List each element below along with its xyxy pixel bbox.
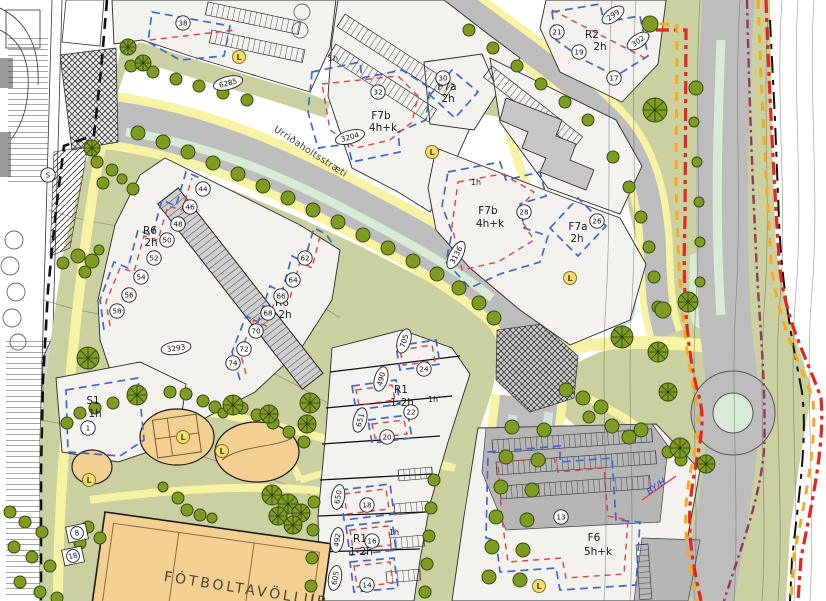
tree-icon [307, 524, 319, 536]
tree-icon [695, 277, 705, 287]
tree-icon [582, 114, 594, 126]
number-text: 32 [373, 88, 382, 97]
large-tree-icon [300, 393, 320, 413]
circled-number: 68 [261, 306, 275, 320]
tree-icon [525, 483, 539, 497]
number-text: 24 [419, 365, 429, 374]
tree-icon [499, 450, 513, 464]
tree-icon [511, 60, 523, 72]
tree-icon [635, 211, 647, 223]
tree-icon [576, 391, 590, 405]
circled-number: 46 [183, 200, 197, 214]
map-label: 4h+k [476, 218, 505, 230]
large-tree-icon [120, 39, 136, 55]
tree-branches [77, 347, 99, 369]
tree-icon [94, 532, 106, 544]
map-label: R1 [394, 384, 408, 396]
tree-branches [135, 55, 151, 71]
tree-icon [51, 592, 63, 601]
tree-icon [643, 241, 655, 253]
tree-icon [298, 436, 310, 448]
map-label: 1h [88, 408, 101, 420]
site-plan-map[interactable]: UrriðaholtsstrætiFÓTBOLTAVÖLLURF7b4h+kF7… [0, 0, 826, 601]
tree-icon [231, 167, 245, 181]
tree-icon [97, 177, 109, 189]
number-text: 54 [136, 273, 146, 282]
tree-icon [305, 580, 317, 592]
tree-icon [34, 586, 46, 598]
circled-number: 17 [607, 71, 621, 85]
tree-icon [695, 237, 705, 247]
east-road-south [708, 430, 733, 601]
tree-branches [260, 405, 278, 423]
circled-number: 19 [572, 45, 586, 59]
tree-icon [463, 24, 475, 36]
number-text: 22 [406, 408, 415, 417]
marker-letter: L [219, 447, 224, 456]
tree-branches [300, 393, 320, 413]
circled-number: 66 [274, 289, 288, 303]
tree-icon [421, 558, 433, 570]
number-text: S [46, 171, 51, 180]
circled-number: 32 [371, 85, 385, 99]
large-tree-icon [648, 342, 668, 362]
circled-number: 20 [380, 430, 394, 444]
tree-icon [356, 228, 370, 242]
tree-icon [256, 179, 270, 193]
circled-number: 62 [298, 251, 312, 265]
circled-number: 58 [110, 304, 124, 318]
tree-icon [164, 386, 176, 398]
large-tree-icon [697, 455, 715, 473]
map-label: 1h [428, 395, 438, 404]
tree-icon [607, 151, 619, 163]
tree-icon [487, 42, 499, 54]
tree-icon [206, 156, 220, 170]
marker-letter: L [86, 476, 91, 485]
number-text: 70 [251, 327, 261, 336]
tree-icon [106, 164, 118, 176]
large-tree-icon [284, 516, 302, 534]
map-label: 2h [278, 309, 291, 321]
large-tree-icon [77, 347, 99, 369]
circled-number: 70 [249, 324, 263, 338]
tree-icon [94, 245, 104, 255]
tree-icon [308, 496, 320, 508]
map-label: 1h [328, 54, 338, 63]
large-tree-icon [643, 98, 667, 122]
tree-icon [283, 426, 295, 438]
tree-icon [117, 174, 127, 184]
number-text: 46 [185, 203, 195, 212]
map-label: 1h [471, 178, 481, 187]
map-label: 5h+k [584, 546, 613, 558]
tree-icon [207, 513, 217, 523]
circled-number: 24 [417, 362, 431, 376]
tree-branches [127, 385, 147, 405]
tree-icon [559, 383, 573, 397]
number-text: 492 [332, 532, 343, 547]
tree-icon [26, 551, 38, 563]
plan-canvas: UrriðaholtsstrætiFÓTBOLTAVÖLLURF7b4h+kF7… [0, 0, 826, 601]
number-text: 44 [198, 185, 208, 194]
circled-number: 64 [286, 273, 300, 287]
tree-icon [107, 397, 119, 409]
tree-icon [61, 417, 73, 429]
number-text: 21 [552, 28, 561, 37]
tree-icon [485, 540, 499, 554]
tree-icon [430, 267, 444, 281]
number-text: 30 [438, 74, 448, 83]
tree-icon [482, 570, 496, 584]
tree-icon [423, 530, 435, 542]
tree-icon [241, 94, 253, 106]
circled-number: 44 [196, 182, 210, 196]
tree-icon [516, 543, 530, 557]
large-tree-icon [260, 405, 278, 423]
circled-number: 52 [147, 251, 161, 265]
tree-icon [172, 492, 184, 504]
tree-icon [655, 302, 671, 318]
tree-icon [127, 183, 139, 195]
tree-icon [583, 411, 595, 423]
tree-branches [298, 415, 316, 433]
tree-icon [535, 78, 547, 90]
tree-icon [131, 126, 145, 140]
map-label: F6 [588, 532, 601, 544]
tree-icon [71, 249, 85, 263]
tree-icon [91, 156, 103, 168]
circled-number: 21 [550, 25, 564, 39]
large-tree-icon [678, 292, 698, 312]
marker-letter: L [180, 433, 185, 442]
marker-letter: L [429, 148, 434, 157]
circled-number: 18 [360, 498, 374, 512]
playground-marker: L [233, 51, 246, 64]
tree-branches [678, 292, 698, 312]
tree-icon [14, 576, 26, 588]
tree-branches [659, 383, 677, 401]
tree-icon [692, 157, 702, 167]
map-label: 4h+k [369, 122, 398, 134]
number-text: 17 [609, 74, 619, 83]
number-text: 48 [173, 220, 183, 229]
tree-icon [689, 117, 699, 127]
tree-icon [452, 281, 466, 295]
large-tree-icon [223, 395, 243, 415]
tree-icon [170, 73, 182, 85]
circled-number: 48 [171, 217, 185, 231]
number-text: 14 [362, 581, 372, 590]
circled-number: 16 [365, 534, 379, 548]
large-tree-icon [611, 326, 633, 348]
tree-icon [520, 513, 534, 527]
playground-marker: L [216, 445, 229, 458]
large-tree-icon [127, 385, 147, 405]
tree-icon [505, 420, 519, 434]
map-label: F7a [568, 221, 587, 233]
tree-icon [487, 311, 501, 325]
large-tree-icon [84, 140, 100, 156]
tree-icon [19, 516, 31, 528]
tree-icon [531, 453, 545, 467]
tree-branches [670, 438, 690, 458]
tree-branches [648, 342, 668, 362]
tree-icon [694, 197, 704, 207]
number-text: 64 [288, 276, 298, 285]
number-text: 62 [300, 254, 309, 263]
tree-icon [513, 573, 527, 587]
tree-icon [57, 257, 69, 269]
tree-icon [194, 509, 206, 521]
circled-number: 22 [404, 405, 418, 419]
tree-icon [489, 510, 503, 524]
map-label: R6 [143, 225, 157, 237]
tree-icon [181, 504, 193, 516]
tree-branches [84, 140, 100, 156]
tree-icon [537, 423, 551, 437]
circled-number: 54 [134, 270, 148, 284]
tree-branches [643, 98, 667, 122]
number-text: 74 [228, 359, 238, 368]
map-label: 2h [570, 233, 583, 245]
map-label: 2h [441, 93, 454, 105]
tree-icon [622, 430, 636, 444]
tree-icon [494, 480, 508, 494]
number-text: 28 [519, 208, 529, 217]
circled-number: 38 [176, 16, 190, 30]
playground-marker: L [83, 474, 96, 487]
tree-icon [4, 506, 16, 518]
circled-number: 13 [554, 510, 568, 524]
map-label: S1 [86, 395, 99, 407]
map-label: 2h [593, 41, 606, 53]
number-text: 58 [112, 307, 122, 316]
marker-letter: L [236, 53, 241, 62]
tree-icon [156, 135, 170, 149]
tree-icon [193, 80, 205, 92]
playground-marker: L [564, 272, 577, 285]
tree-icon [306, 203, 320, 217]
playground-marker: L [426, 146, 439, 159]
circled-number: 74 [226, 356, 240, 370]
tree-icon [44, 560, 56, 572]
tree-icon [74, 407, 86, 419]
circled-number: 56 [122, 288, 136, 302]
tree-icon [406, 254, 420, 268]
map-label: 1h [389, 528, 399, 537]
tree-icon [197, 395, 209, 407]
tree-icon [648, 271, 660, 283]
number-text: 50 [162, 236, 172, 245]
number-text: 18 [362, 501, 372, 510]
tree-icon [425, 502, 437, 514]
circled-number: 14 [360, 578, 374, 592]
tree-icon [559, 96, 571, 108]
map-label: F7b [478, 205, 498, 217]
circled-number: 26 [590, 214, 604, 228]
tree-icon [381, 241, 395, 255]
map-label: R2 [585, 29, 599, 41]
circled-number: 72 [237, 342, 251, 356]
tree-icon [306, 552, 318, 564]
tree-branches [120, 39, 136, 55]
playground-marker: L [177, 431, 190, 444]
large-tree-icon [659, 383, 677, 401]
number-text: 56 [124, 291, 134, 300]
tree-branches [284, 516, 302, 534]
number-text: 72 [239, 345, 248, 354]
tree-icon [472, 296, 486, 310]
tree-icon [594, 400, 608, 414]
map-label: F7b [371, 110, 391, 122]
tree-icon [36, 526, 48, 538]
circled-number: 50 [160, 233, 174, 247]
large-tree-icon [135, 55, 151, 71]
playground-marker: L [533, 580, 546, 593]
number-text: 20 [382, 433, 392, 442]
number-text: 19 [574, 48, 584, 57]
circled-number: S [41, 168, 55, 182]
tree-icon [158, 482, 168, 492]
tree-icon [79, 266, 91, 278]
tree-branches [223, 395, 243, 415]
number-text: 16 [367, 537, 377, 546]
tree-icon [605, 419, 619, 433]
number-text: 66 [276, 292, 286, 301]
tree-branches [611, 326, 633, 348]
number-text: 68 [263, 309, 273, 318]
map-label: 2h [144, 237, 157, 249]
east-road-median [717, 40, 721, 315]
tree-icon [419, 586, 431, 598]
tree-icon [8, 541, 20, 553]
tree-icon [281, 191, 295, 205]
tree-icon [689, 81, 703, 95]
number-text: 38 [178, 19, 188, 28]
marker-letter: L [536, 582, 541, 591]
tree-icon [331, 215, 345, 229]
tree-branches [697, 455, 715, 473]
number-text: 26 [592, 217, 602, 226]
large-tree-icon [670, 438, 690, 458]
roundabout-center [713, 393, 753, 433]
tree-icon [623, 181, 635, 193]
number-text: 13 [556, 513, 566, 522]
marker-letter: L [567, 274, 572, 283]
number-text: 52 [149, 254, 158, 263]
circled-number: 1 [81, 421, 95, 435]
circled-number: 28 [517, 205, 531, 219]
tree-icon [428, 474, 440, 486]
circled-number: 30 [436, 71, 450, 85]
large-tree-icon [298, 415, 316, 433]
number-text: 1 [86, 424, 91, 433]
tree-icon [180, 388, 192, 400]
tree-icon [642, 16, 658, 32]
tree-icon [181, 145, 195, 159]
